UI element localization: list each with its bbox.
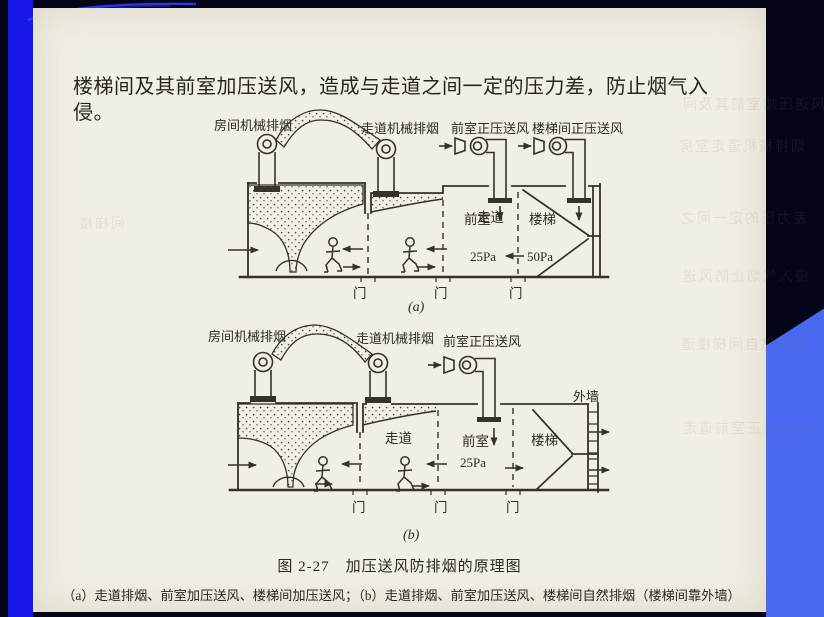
stick-figure <box>324 238 342 272</box>
door-label: 门 <box>506 500 520 515</box>
ghost-bleedthrough-text: 侵入气烟止防风送 <box>681 266 809 286</box>
diagram-a: 房间机械排烟 走道机械排烟 前室正压送风 楼梯间正压送风 <box>180 105 675 320</box>
exhaust-fan-icon <box>250 353 276 403</box>
smoke-plume <box>276 110 380 149</box>
stick-figure <box>401 238 419 272</box>
door-label: 门 <box>509 286 523 301</box>
diagram-tag-a: (a) <box>408 300 425 315</box>
pressure-value-stair-a: 50Pa <box>527 249 553 264</box>
exhaust-fan-icon <box>365 354 391 404</box>
slide-right-background <box>766 0 824 617</box>
figure-caption-title: 图 2-27 加压送风防排烟的原理图 <box>33 555 766 576</box>
supply-fan-icon <box>439 138 512 204</box>
label-room-mech-exhaust-b: 房间机械排烟 <box>208 329 286 344</box>
door-label: 门 <box>434 500 448 515</box>
label-stair-pressure-supply-a: 楼梯间正压送风 <box>532 121 623 136</box>
slide-left-accent-bar <box>8 0 33 617</box>
label-corridor-mech-exhaust-a: 走道机械排烟 <box>361 121 439 136</box>
ghost-bleedthrough-text: 烟排然自间梯楼道 <box>679 334 807 354</box>
exhaust-fan-icon <box>254 135 280 193</box>
label-lobby-pressure-supply-a: 前室正压送风 <box>451 121 529 136</box>
label-outer-wall: 外墙 <box>573 389 599 404</box>
room-label-corridor-b: 走道 <box>385 431 412 446</box>
smoke-fire-room <box>248 185 363 272</box>
door-label: 门 <box>434 286 448 301</box>
slide-corner-accent <box>766 0 824 617</box>
room-label-lobby-a: 前室 <box>464 211 491 227</box>
diagram-b: 房间机械排烟 走道机械排烟 前室正压送风 外墙 <box>190 320 630 553</box>
diagram-tag-b: (b) <box>403 528 420 543</box>
door-label: 门 <box>353 286 367 301</box>
supply-fan-icon <box>428 357 501 423</box>
room-label-stair-b: 楼梯 <box>531 433 558 448</box>
label-corridor-mech-exhaust-b: 走道机械排烟 <box>356 331 434 346</box>
label-room-mech-exhaust-a: 房间机械排烟 <box>214 118 292 133</box>
slide[interactable]: 楼梯间及其前室加压送风，造成与走道之间一定的压力差，防止烟气入侵。 风送压加室前… <box>0 0 824 617</box>
door-label: 门 <box>352 500 366 515</box>
ghost-bleedthrough-text: 风送压加室前其及间 <box>681 94 824 114</box>
ghost-bleedthrough-text: 间梯楼 <box>77 213 125 233</box>
figure-caption-subtitle: （a）走道排烟、前室加压送风、楼梯间加压送风；（b）走道排烟、前室加压送风、楼梯… <box>41 585 762 604</box>
exhaust-fan-icon <box>373 140 399 198</box>
pressure-value-lobby-b: 25Pa <box>460 455 486 470</box>
pressure-value-lobby-a: 25Pa <box>470 249 496 264</box>
room-label-lobby-b: 前室 <box>462 433 489 449</box>
ghost-bleedthrough-text: 差力压的定一间之 <box>679 208 807 228</box>
label-lobby-pressure-supply-b: 前室正压送风 <box>443 334 521 349</box>
ghost-bleedthrough-text: 烟排械机道走室房 <box>677 136 805 156</box>
stick-figure <box>314 457 332 491</box>
smoke-fire-room <box>238 404 353 487</box>
scanned-page: 楼梯间及其前室加压送风，造成与走道之间一定的压力差，防止烟气入侵。 风送压加室前… <box>33 8 766 612</box>
room-label-stair-a: 楼梯 <box>529 212 556 227</box>
stick-figure <box>396 457 414 491</box>
ghost-bleedthrough-text: 风送压正室前道走 <box>681 418 809 438</box>
